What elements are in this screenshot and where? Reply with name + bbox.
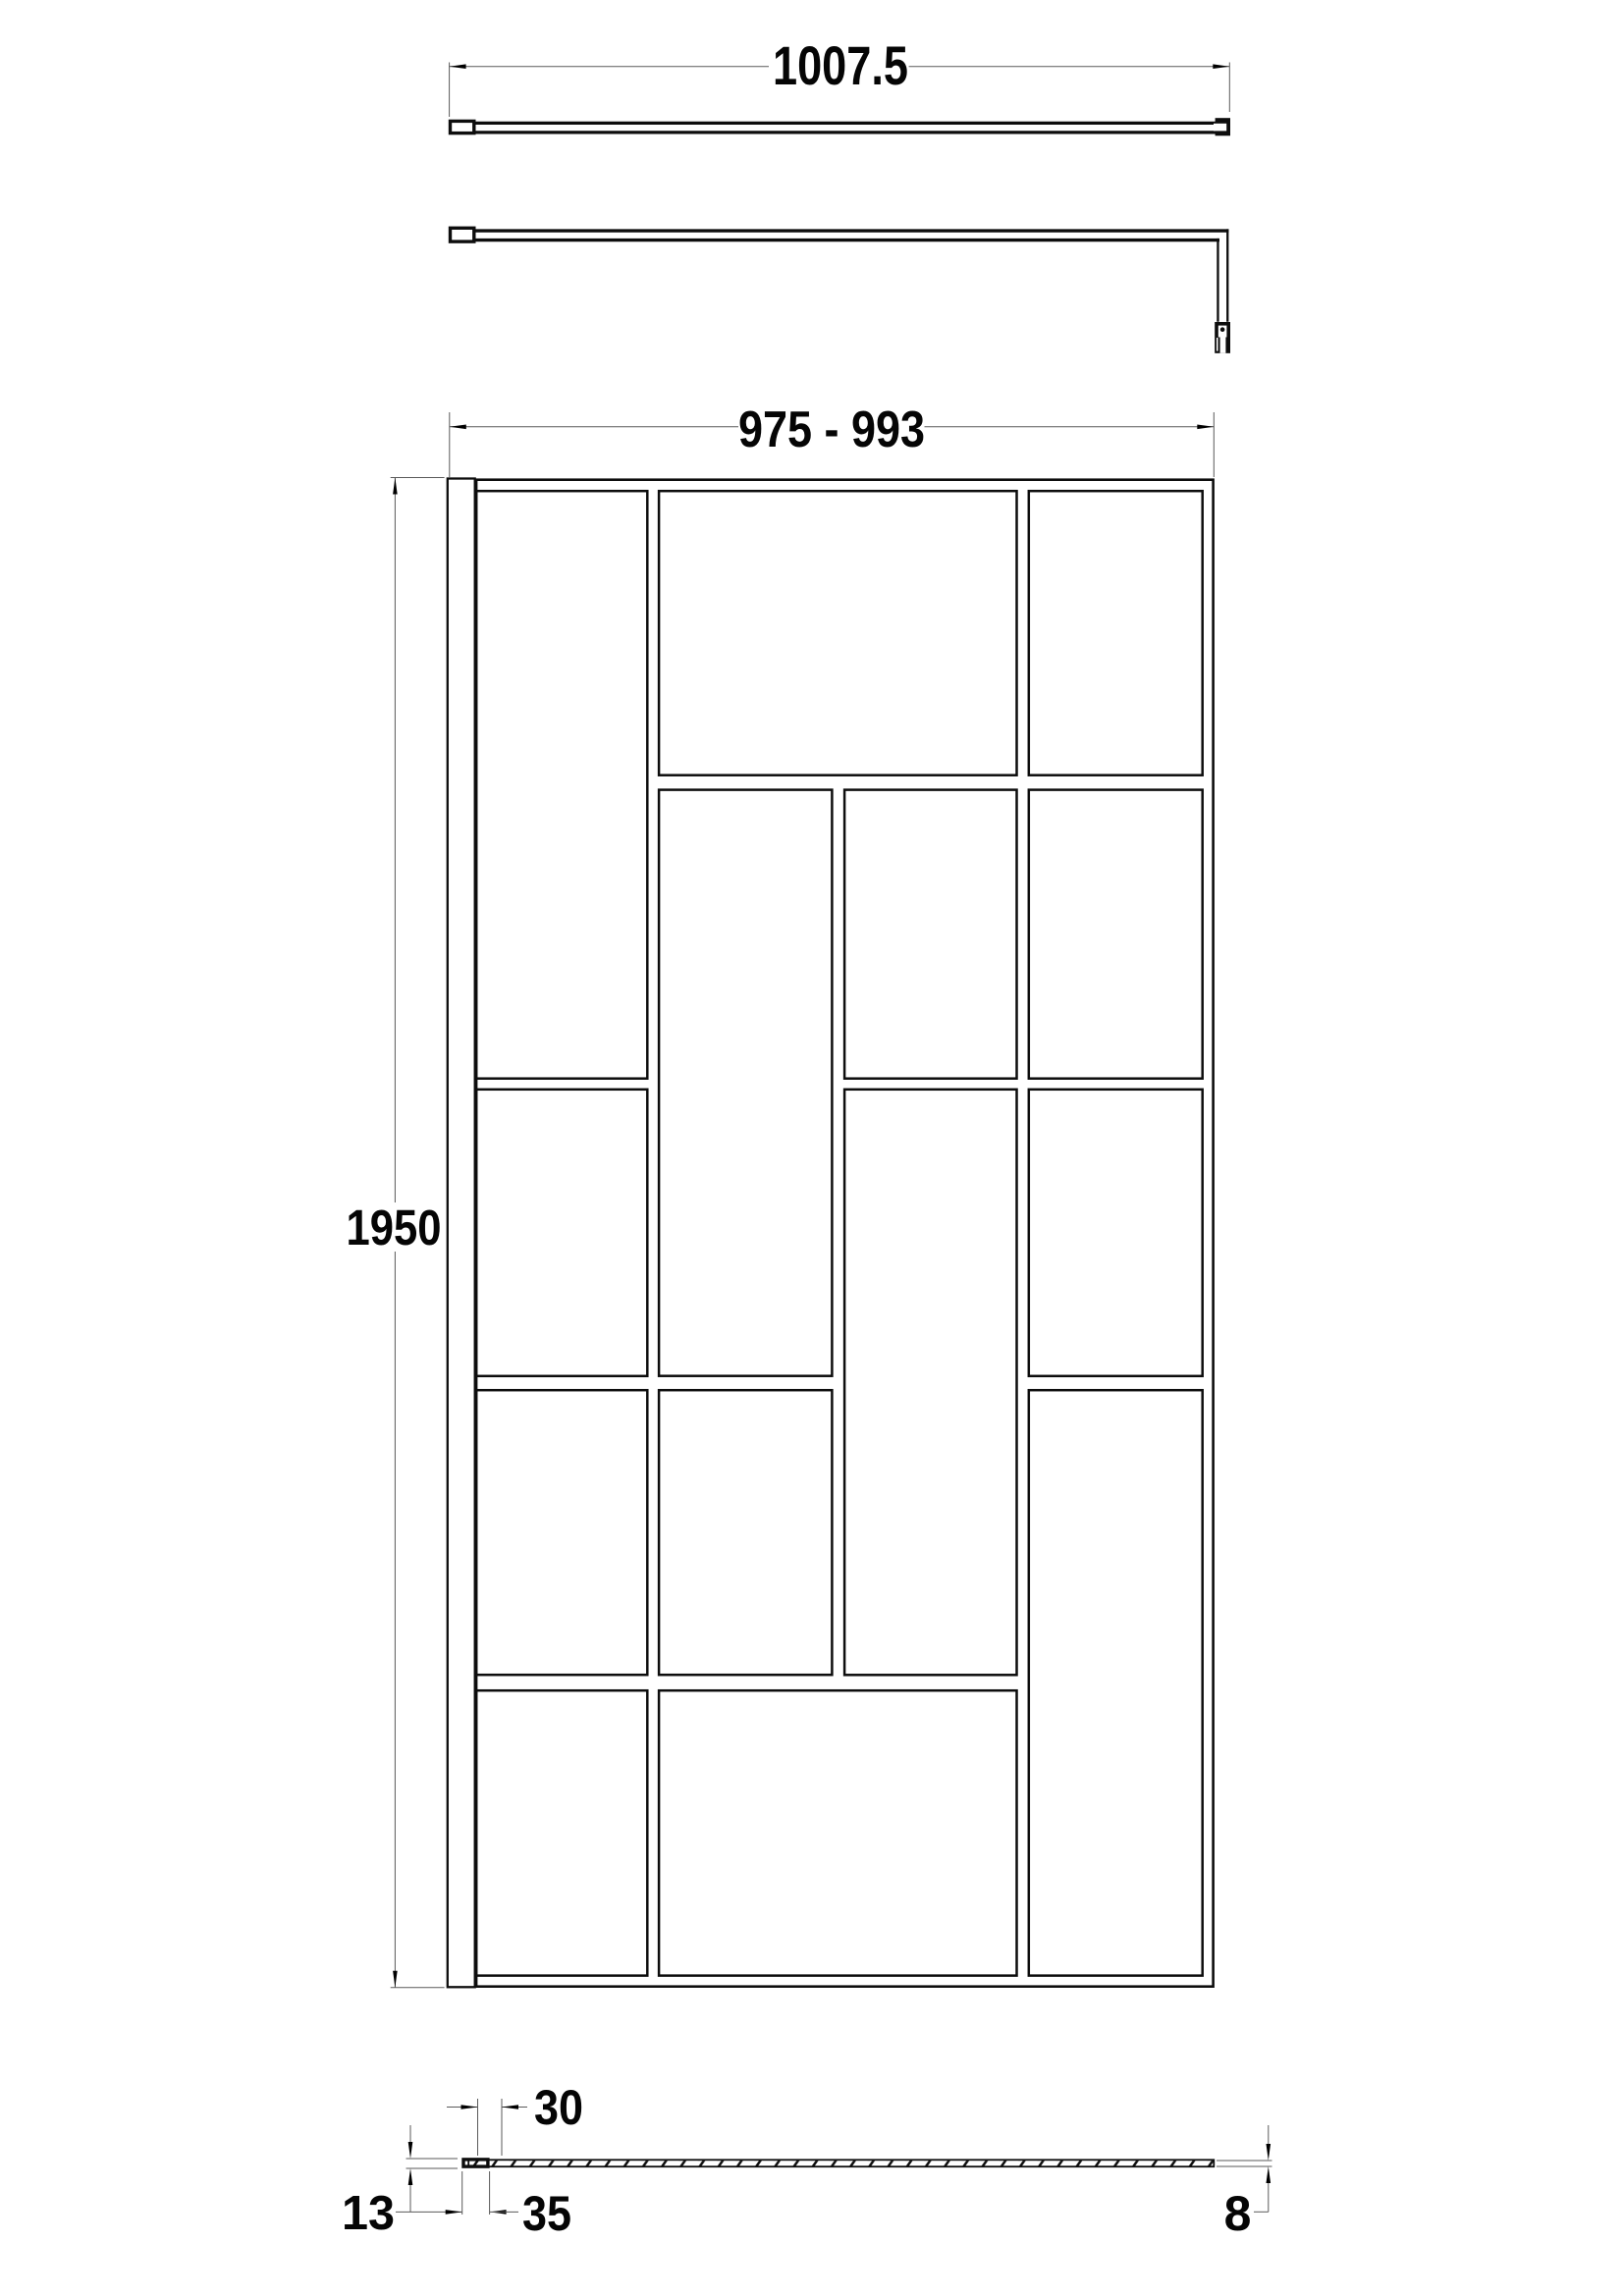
svg-text:30: 30 [534, 2080, 583, 2135]
svg-text:8: 8 [1224, 2186, 1252, 2241]
svg-text:13: 13 [342, 2187, 395, 2240]
svg-text:1007.5: 1007.5 [773, 35, 908, 96]
svg-text:975 - 993: 975 - 993 [738, 400, 925, 457]
svg-text:1950: 1950 [347, 1200, 442, 1255]
svg-text:35: 35 [522, 2186, 571, 2241]
